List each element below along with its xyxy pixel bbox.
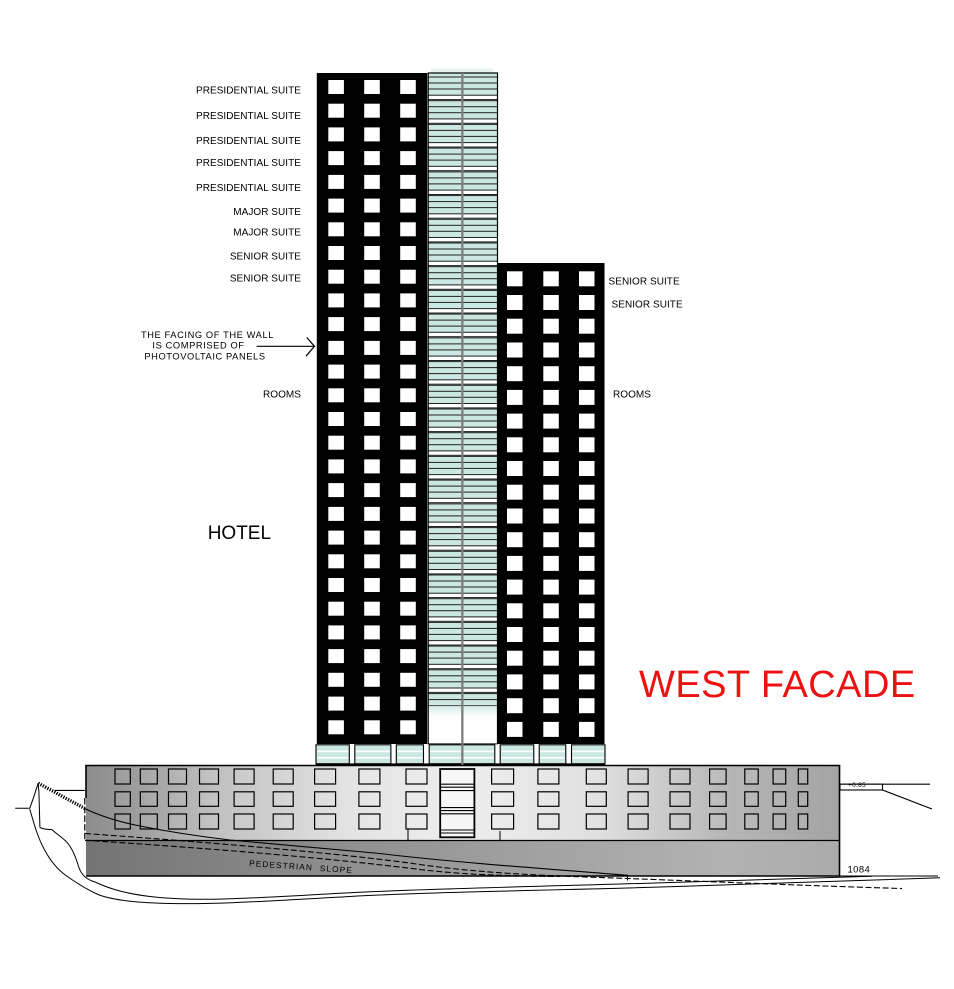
svg-text:ROOMS: ROOMS — [613, 390, 651, 401]
svg-text:PHOTOVOLTAIC PANELS: PHOTOVOLTAIC PANELS — [144, 351, 265, 361]
svg-text:1084: 1084 — [848, 865, 871, 876]
svg-text:PRESIDENTIAL SUITE: PRESIDENTIAL SUITE — [196, 158, 301, 169]
svg-text:ROOMS: ROOMS — [263, 389, 301, 400]
svg-text:PRESIDENTIAL SUITE: PRESIDENTIAL SUITE — [196, 111, 301, 122]
svg-text:SENIOR SUITE: SENIOR SUITE — [230, 252, 301, 263]
svg-text:WEST FACADE: WEST FACADE — [639, 664, 916, 706]
svg-text:PRESIDENTIAL SUITE: PRESIDENTIAL SUITE — [196, 136, 301, 147]
svg-text:SENIOR SUITE: SENIOR SUITE — [612, 299, 683, 310]
svg-text:PRESIDENTIAL SUITE: PRESIDENTIAL SUITE — [196, 85, 301, 96]
svg-text:IS COMPRISED OF: IS COMPRISED OF — [152, 340, 244, 350]
svg-text:MAJOR SUITE: MAJOR SUITE — [233, 207, 301, 218]
svg-text:THE FACING OF THE WALL: THE FACING OF THE WALL — [141, 330, 274, 340]
svg-text:MAJOR SUITE: MAJOR SUITE — [233, 228, 301, 239]
svg-text:HOTEL: HOTEL — [208, 523, 271, 544]
svg-text:SENIOR SUITE: SENIOR SUITE — [609, 276, 680, 287]
svg-text:+0.85: +0.85 — [848, 782, 866, 789]
svg-text:SENIOR SUITE: SENIOR SUITE — [230, 273, 301, 284]
svg-text:PRESIDENTIAL SUITE: PRESIDENTIAL SUITE — [196, 183, 301, 194]
